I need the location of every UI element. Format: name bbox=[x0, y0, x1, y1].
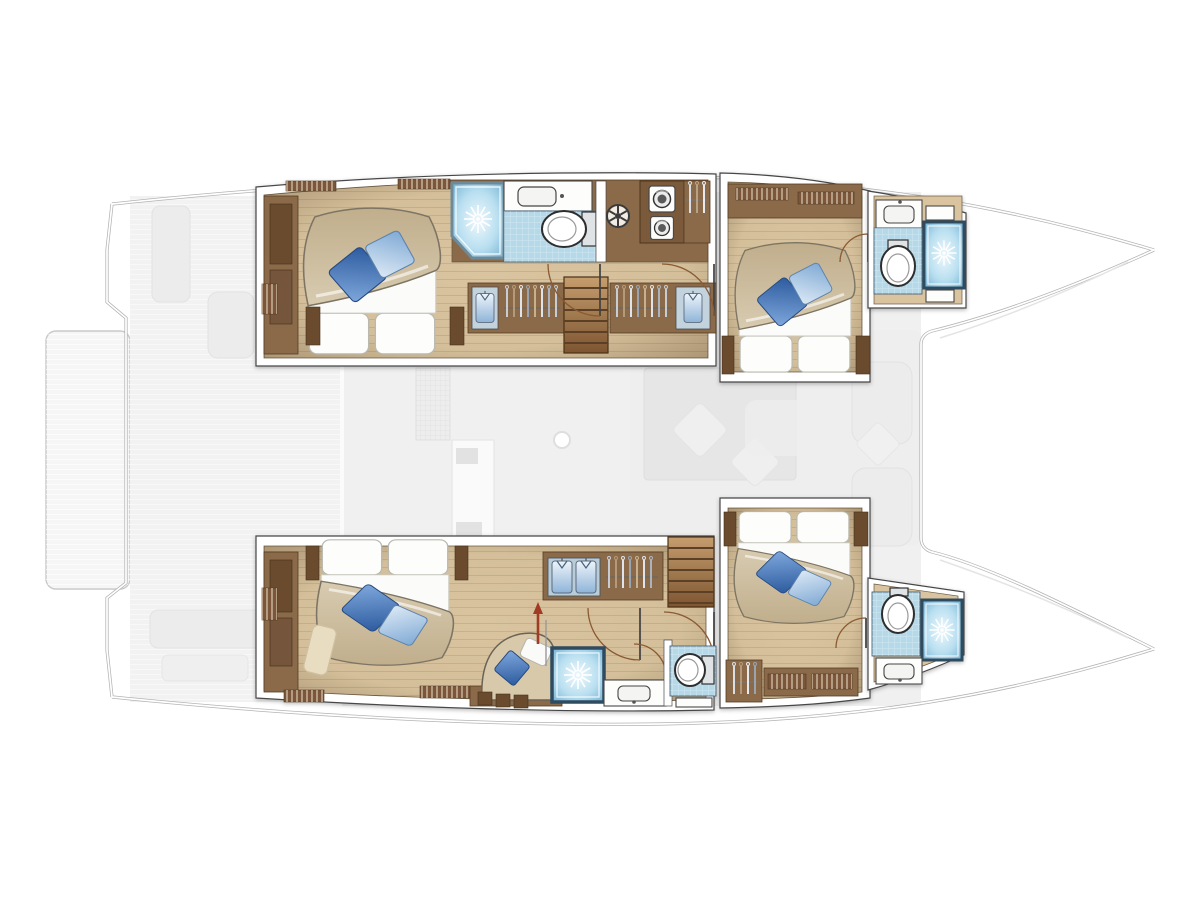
bedside-locker bbox=[724, 512, 736, 546]
washbasin bbox=[884, 664, 914, 679]
port-aft-shower bbox=[452, 183, 504, 258]
toilet bbox=[675, 654, 714, 686]
ghost-bench-small bbox=[162, 655, 248, 681]
cabinet bbox=[926, 206, 954, 220]
washbasin bbox=[518, 187, 556, 206]
shower bbox=[924, 222, 964, 288]
washbasin bbox=[618, 686, 650, 701]
ghost-locker bbox=[208, 292, 254, 358]
bedside-locker bbox=[306, 546, 319, 580]
cabinet bbox=[926, 290, 954, 302]
bedside-locker bbox=[306, 307, 320, 345]
starboard-stairs bbox=[668, 537, 714, 607]
bedside-locker bbox=[450, 307, 464, 345]
toilet bbox=[542, 211, 596, 247]
bedside-locker bbox=[854, 512, 868, 546]
bedside-locker bbox=[455, 546, 468, 580]
washbasin bbox=[884, 206, 914, 223]
port-hull bbox=[256, 173, 966, 382]
bow-deck-line bbox=[940, 560, 1128, 638]
ghost-lounge bbox=[745, 400, 845, 456]
port-forward-cabin bbox=[720, 173, 870, 382]
bedside-locker bbox=[722, 336, 734, 374]
shower bbox=[922, 600, 962, 660]
hanging-locker bbox=[726, 660, 762, 702]
ghost-console bbox=[152, 206, 190, 302]
port-stairs bbox=[564, 277, 608, 353]
port-aft-suite bbox=[256, 173, 716, 366]
starboard-forward-head bbox=[868, 578, 964, 690]
port-aft-head bbox=[504, 181, 606, 262]
starboard-aft-suite bbox=[256, 536, 716, 711]
starboard-mid-shower bbox=[552, 648, 604, 702]
floor-plan-canvas: Catamaran lower deck floor plan Top-down… bbox=[0, 0, 1200, 900]
starboard-forward-cabin bbox=[720, 498, 870, 708]
bedside-locker bbox=[856, 336, 870, 374]
floor-plan-page: Catamaran lower deck floor plan Top-down… bbox=[0, 0, 1200, 900]
ghost-mast bbox=[554, 432, 570, 448]
cabinet bbox=[676, 698, 712, 707]
port-forward-head bbox=[868, 191, 966, 308]
